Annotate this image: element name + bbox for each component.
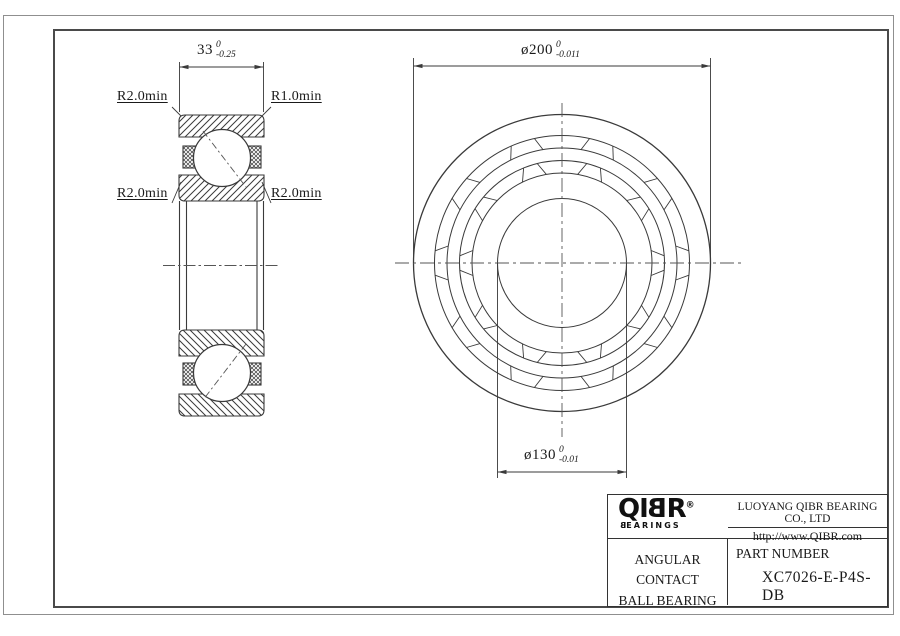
company-info: LUOYANG QIBR BEARING CO., LTD http://www… bbox=[728, 495, 887, 538]
ball-lower bbox=[194, 345, 251, 402]
radius-label-top-right: R1.0min bbox=[271, 89, 322, 105]
title-block-detail-row: ANGULAR CONTACT BALL BEARING PART NUMBER… bbox=[608, 539, 887, 605]
product-type: ANGULAR CONTACT BALL BEARING bbox=[608, 539, 728, 605]
radius-label-mid-left: R2.0min bbox=[117, 186, 168, 202]
dimension-width bbox=[180, 62, 264, 112]
logo-wordmark: QIBR® bbox=[618, 496, 728, 523]
title-block: QIBR® BEARINGS LUOYANG QIBR BEARING CO.,… bbox=[607, 494, 888, 607]
company-logo: QIBR® BEARINGS bbox=[608, 495, 728, 538]
dim-od-text: ø2000-0.011 bbox=[521, 42, 580, 63]
radius-label-top-left: R2.0min bbox=[117, 89, 168, 105]
dim-width-text: 330-0.25 bbox=[197, 42, 236, 63]
front-view bbox=[395, 103, 743, 437]
section-view bbox=[163, 115, 278, 416]
dim-bore-text: ø1300-0.01 bbox=[524, 447, 579, 468]
company-name: LUOYANG QIBR BEARING CO., LTD bbox=[728, 501, 887, 528]
part-number-label: PART NUMBER bbox=[736, 546, 887, 562]
part-number-value: XC7026-E-P4S-DB bbox=[762, 569, 887, 605]
registered-mark: ® bbox=[686, 500, 695, 510]
product-type-line1: ANGULAR CONTACT bbox=[608, 550, 727, 591]
logo-tagline: BEARINGS bbox=[618, 521, 728, 530]
title-block-header-row: QIBR® BEARINGS LUOYANG QIBR BEARING CO.,… bbox=[608, 495, 887, 539]
radius-label-mid-right: R2.0min bbox=[271, 186, 322, 202]
part-number-cell: PART NUMBER XC7026-E-P4S-DB bbox=[728, 539, 887, 605]
ball-upper bbox=[194, 130, 251, 187]
product-type-line2: BALL BEARING bbox=[608, 591, 727, 611]
drawing-sheet: 330-0.25 R2.0min R1.0min R2.0min R2.0min… bbox=[0, 0, 900, 636]
